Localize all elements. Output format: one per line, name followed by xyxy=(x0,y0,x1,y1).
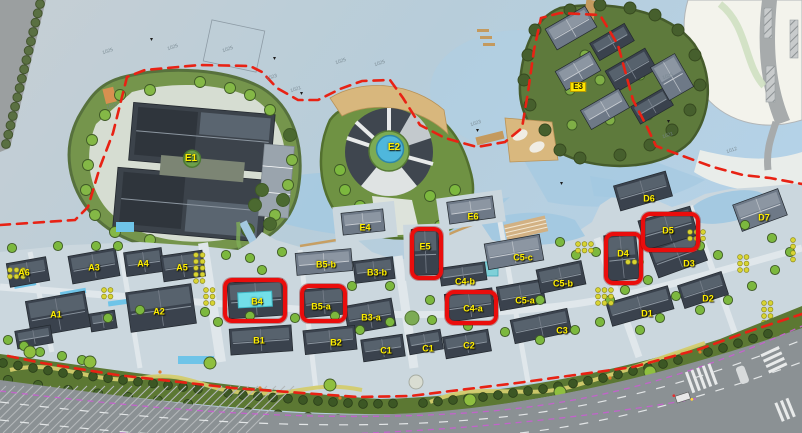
block-label-c4a[interactable]: C4-a xyxy=(463,305,483,314)
block-label-d6[interactable]: D6 xyxy=(643,195,655,204)
block-label-d1[interactable]: D1 xyxy=(641,310,653,319)
block-label-c5a[interactable]: C5-a xyxy=(515,297,535,306)
block-label-e6[interactable]: E6 xyxy=(467,213,478,222)
block-label-c1-east[interactable]: C1 xyxy=(422,345,434,354)
block-label-a4[interactable]: A4 xyxy=(137,260,149,269)
block-label-c5c[interactable]: C5-c xyxy=(513,254,533,263)
block-label-a5[interactable]: A5 xyxy=(176,264,188,273)
block-label-b3b[interactable]: B3-b xyxy=(367,269,387,278)
survey-annotation: 1021 xyxy=(290,86,302,94)
block-label-b5b[interactable]: B5-b xyxy=(316,261,336,270)
block-label-d4[interactable]: D4 xyxy=(617,250,629,259)
survey-annotation: 1025 xyxy=(167,44,179,52)
survey-annotation: 1025 xyxy=(102,48,114,56)
block-label-d2[interactable]: D2 xyxy=(702,295,714,304)
survey-annotation: 1012 xyxy=(726,147,738,155)
survey-annotation: 1023 xyxy=(106,103,118,111)
survey-annotation: 1021 xyxy=(662,132,674,140)
survey-annotation: 1025 xyxy=(374,60,386,68)
block-label-b4[interactable]: B4 xyxy=(251,298,263,307)
site-plan-canvas: E1E2E3E4E5E6A6A3A4A5A1A2B5-bB3-bB4B5-aB3… xyxy=(0,0,802,433)
block-label-d5[interactable]: D5 xyxy=(662,227,674,236)
block-label-e2[interactable]: E2 xyxy=(388,143,400,153)
block-label-a2[interactable]: A2 xyxy=(153,308,165,317)
block-label-b2[interactable]: B2 xyxy=(330,339,342,348)
block-label-c3[interactable]: C3 xyxy=(556,327,568,336)
block-label-d3[interactable]: D3 xyxy=(683,260,695,269)
block-label-e3[interactable]: E3 xyxy=(570,82,586,92)
survey-annotation: 1023 xyxy=(266,74,278,82)
block-label-b5a[interactable]: B5-a xyxy=(311,303,331,312)
block-label-c2[interactable]: C2 xyxy=(463,342,475,351)
block-label-e4[interactable]: E4 xyxy=(359,224,370,233)
block-label-d7[interactable]: D7 xyxy=(758,214,770,223)
block-label-c4b[interactable]: C4-b xyxy=(455,278,475,287)
survey-annotation: 1025 xyxy=(662,73,674,81)
block-label-b3a[interactable]: B3-a xyxy=(361,314,381,323)
block-label-a1[interactable]: A1 xyxy=(50,311,62,320)
survey-annotation: 1025 xyxy=(222,46,234,54)
survey-annotation: 1025 xyxy=(335,58,347,66)
survey-annotation: 1023 xyxy=(470,120,482,128)
block-label-e5[interactable]: E5 xyxy=(419,243,430,252)
block-label-e1[interactable]: E1 xyxy=(185,154,197,164)
highlight-box-e5[interactable] xyxy=(410,227,443,280)
block-label-a3[interactable]: A3 xyxy=(88,264,100,273)
annotation-overlay: E1E2E3E4E5E6A6A3A4A5A1A2B5-bB3-bB4B5-aB3… xyxy=(0,0,802,433)
block-label-c5b[interactable]: C5-b xyxy=(553,280,573,289)
block-label-b1[interactable]: B1 xyxy=(253,337,265,346)
block-label-c1-west[interactable]: C1 xyxy=(380,347,392,356)
block-label-a6[interactable]: A6 xyxy=(18,269,30,278)
highlight-box-d4[interactable] xyxy=(604,232,643,285)
